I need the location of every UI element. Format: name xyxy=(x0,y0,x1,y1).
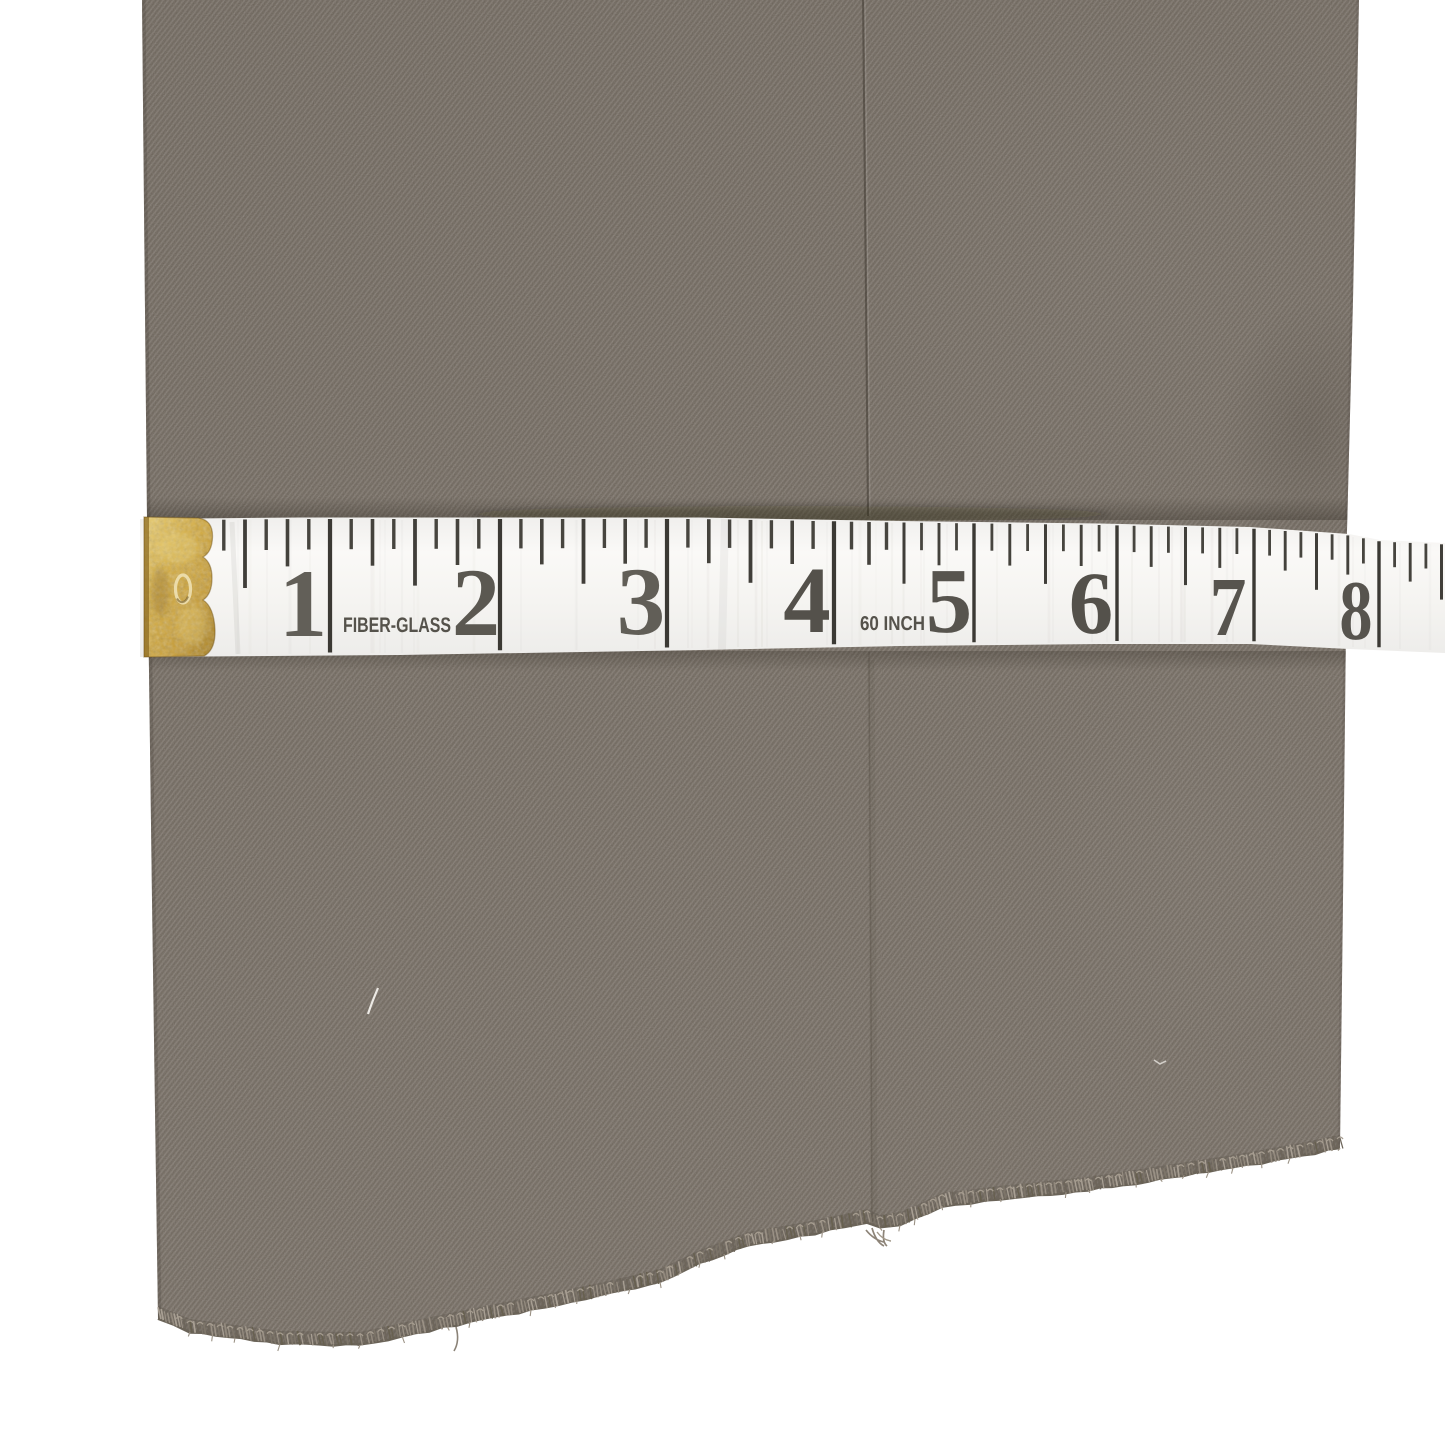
svg-text:3: 3 xyxy=(617,548,666,655)
svg-text:FIBER-GLASS: FIBER-GLASS xyxy=(343,614,451,637)
svg-text:7: 7 xyxy=(1210,561,1247,654)
svg-text:6: 6 xyxy=(1069,555,1114,653)
svg-text:4: 4 xyxy=(783,547,831,653)
svg-text:1: 1 xyxy=(279,550,328,657)
svg-text:5: 5 xyxy=(926,550,973,653)
svg-text:8: 8 xyxy=(1339,564,1372,658)
svg-text:60 INCH: 60 INCH xyxy=(860,613,925,635)
svg-text:2: 2 xyxy=(452,549,501,656)
